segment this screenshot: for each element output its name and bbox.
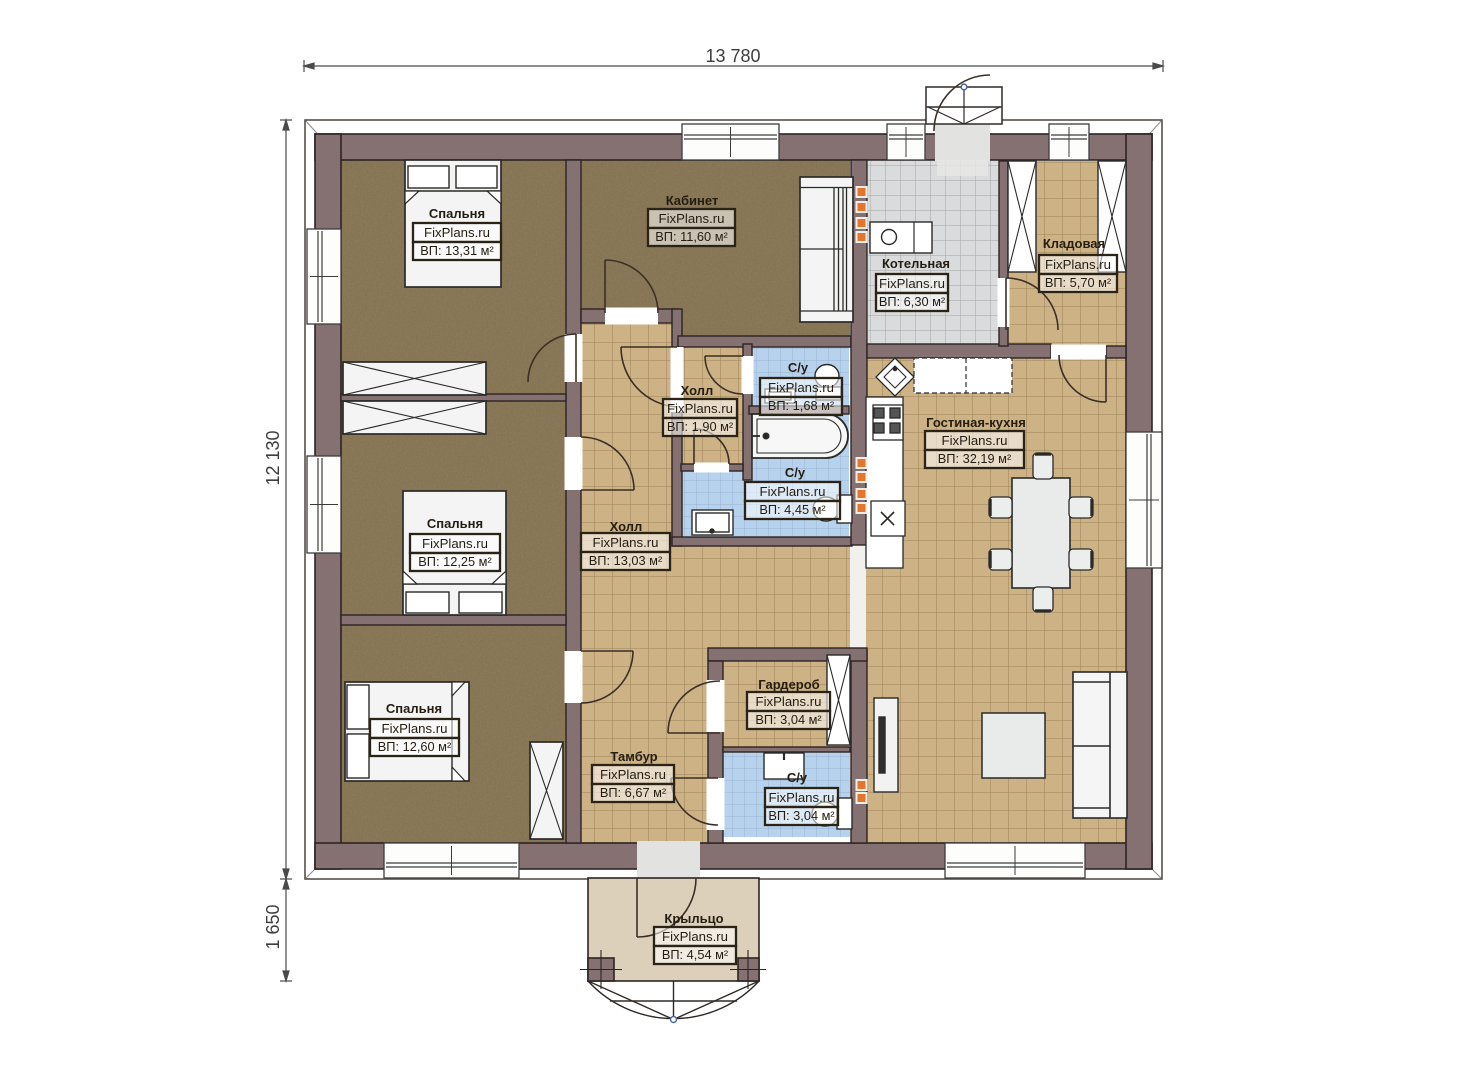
svg-text:С/у: С/у	[785, 465, 806, 480]
svg-text:Котельная: Котельная	[882, 256, 950, 271]
svg-text:FixPlans.ru: FixPlans.ru	[659, 211, 725, 226]
svg-text:ВП: 11,60 м²: ВП: 11,60 м²	[655, 229, 728, 244]
svg-text:ВП: 5,70 м²: ВП: 5,70 м²	[1045, 275, 1112, 290]
svg-text:Кабинет: Кабинет	[666, 193, 719, 208]
svg-text:1 650: 1 650	[263, 904, 283, 949]
svg-text:С/у: С/у	[787, 770, 808, 785]
svg-text:ВП: 32,19 м²: ВП: 32,19 м²	[938, 451, 1012, 466]
svg-text:FixPlans.ru: FixPlans.ru	[879, 276, 945, 291]
svg-text:Гостиная-кухня: Гостиная-кухня	[926, 415, 1026, 430]
svg-text:FixPlans.ru: FixPlans.ru	[600, 767, 666, 782]
svg-text:FixPlans.ru: FixPlans.ru	[424, 225, 490, 240]
svg-text:ВП: 4,54 м²: ВП: 4,54 м²	[662, 947, 729, 962]
svg-text:FixPlans.ru: FixPlans.ru	[593, 535, 659, 550]
svg-text:ВП: 1,68 м²: ВП: 1,68 м²	[768, 398, 835, 413]
svg-text:Спальня: Спальня	[427, 516, 483, 531]
svg-text:Кладовая: Кладовая	[1043, 236, 1105, 251]
svg-text:FixPlans.ru: FixPlans.ru	[768, 380, 834, 395]
svg-text:ВП: 12,60 м²: ВП: 12,60 м²	[378, 739, 452, 754]
svg-text:С/у: С/у	[788, 360, 809, 375]
svg-text:FixPlans.ru: FixPlans.ru	[942, 433, 1008, 448]
svg-text:ВП: 6,30 м²: ВП: 6,30 м²	[879, 294, 946, 309]
svg-text:Холл: Холл	[681, 383, 714, 398]
svg-text:ВП: 13,03 м²: ВП: 13,03 м²	[589, 553, 663, 568]
svg-text:FixPlans.ru: FixPlans.ru	[760, 484, 826, 499]
svg-text:ВП: 12,25 м²: ВП: 12,25 м²	[418, 554, 492, 569]
svg-text:FixPlans.ru: FixPlans.ru	[382, 721, 448, 736]
svg-text:Гардероб: Гардероб	[758, 677, 819, 692]
svg-text:FixPlans.ru: FixPlans.ru	[756, 694, 822, 709]
svg-text:Тамбур: Тамбур	[610, 749, 657, 764]
svg-text:Спальня: Спальня	[429, 206, 485, 221]
svg-text:12 130: 12 130	[263, 430, 283, 485]
svg-text:ВП: 6,67 м²: ВП: 6,67 м²	[600, 785, 667, 800]
svg-text:FixPlans.ru: FixPlans.ru	[667, 401, 733, 416]
svg-text:ВП: 3,04 м²: ВП: 3,04 м²	[768, 808, 835, 823]
svg-text:FixPlans.ru: FixPlans.ru	[422, 536, 488, 551]
svg-text:FixPlans.ru: FixPlans.ru	[1045, 257, 1111, 272]
svg-text:ВП: 4,45 м²: ВП: 4,45 м²	[759, 502, 826, 517]
svg-text:ВП: 1,90 м²: ВП: 1,90 м²	[667, 419, 734, 434]
svg-text:FixPlans.ru: FixPlans.ru	[662, 929, 728, 944]
svg-text:Холл: Холл	[610, 519, 643, 534]
svg-text:FixPlans.ru: FixPlans.ru	[769, 790, 835, 805]
svg-text:ВП: 13,31 м²: ВП: 13,31 м²	[420, 243, 494, 258]
svg-text:Крыльцо: Крыльцо	[664, 911, 723, 926]
svg-text:13 780: 13 780	[705, 46, 760, 66]
svg-text:Спальня: Спальня	[386, 701, 442, 716]
svg-text:ВП: 3,04 м²: ВП: 3,04 м²	[755, 712, 822, 727]
